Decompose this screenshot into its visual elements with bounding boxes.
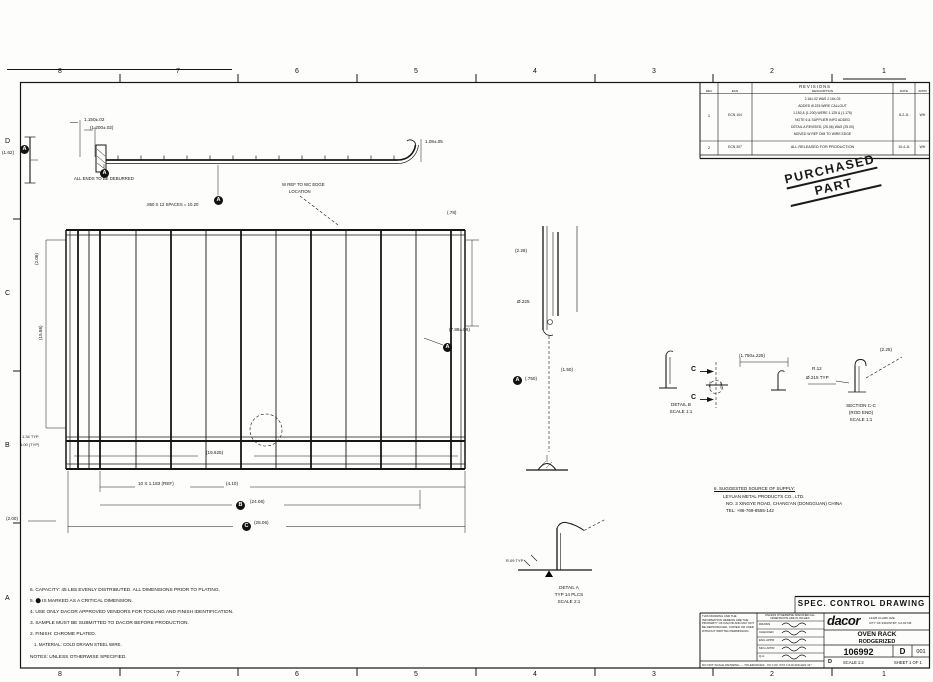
side-profile-view [25, 120, 422, 225]
section-caption: SCALE 1:1 [840, 417, 882, 422]
flag-note-balloon: A [513, 376, 522, 385]
zone-number-top: 5 [406, 68, 426, 75]
dim-label: (19.625) [206, 450, 223, 455]
dim-label: (.750) [525, 376, 537, 381]
revision-desc-line: 1.150 & (1.200) WERE 1.125 & (1.175) [752, 111, 893, 115]
dim-label: (.78) [447, 210, 456, 215]
dim-label: R.12 [812, 366, 822, 371]
revision-rev: 2 [700, 145, 718, 150]
general-note: 1. MATERIAL: COLD DRAWN STEEL WIRE. [34, 642, 122, 647]
zone-number-bottom: 8 [50, 671, 70, 678]
general-note: 4. USE ONLY DACOR APPROVED VENDORS FOR T… [30, 610, 233, 615]
zone-number-bottom: 6 [287, 671, 307, 678]
supplier-note-line: NO. 3 XINGYE ROAD, CHANG'AN (DONGGUAN) C… [726, 501, 842, 506]
dim-label: Ø.225 [517, 299, 530, 304]
general-note: 3. SAMPLE MUST BE SUBMITTED TO DACOR BEF… [30, 621, 189, 626]
zone-letter-left: A [5, 595, 10, 602]
dim-label: 1.34 TYP [22, 434, 39, 439]
zone-number-top: 1 [874, 68, 894, 75]
signature-row-label: DRAWN [759, 622, 770, 626]
general-note: 2. FINISH: CHROME PLATED. [30, 632, 96, 637]
detail-caption: SCALE 1:1 [664, 409, 698, 414]
revision-appr: WH [915, 145, 930, 149]
dim-label: (1.62) [2, 150, 14, 155]
zone-number-top: 4 [525, 68, 545, 75]
revision-number: 001 [912, 649, 930, 655]
desc-col-header: DESCRIPTION [752, 89, 893, 93]
revision-rev: 1 [700, 113, 718, 118]
sheet-size: D [893, 647, 912, 656]
zone-number-top: 3 [644, 68, 664, 75]
revision-appr: WH [915, 113, 930, 117]
supplier-note-line: TEL: +86-769-8555-142 [726, 508, 774, 513]
zone-number-bottom: 1 [874, 671, 894, 678]
detail-caption: DETAIL A [546, 585, 592, 590]
revision-desc-line: NOTE 6 & SUPPLIER INFO ADDED [752, 118, 893, 122]
revision-date: 8-2-11 [893, 113, 915, 117]
zone-number-bottom: 5 [406, 671, 426, 678]
general-note: 5. ⬤ IS MARKED AS A CRITICAL DIMENSION. [30, 599, 133, 604]
zone-number-bottom: 2 [762, 671, 782, 678]
flag-note-balloon: A [20, 145, 29, 154]
proprietary-notice: This drawing and the information hereon … [702, 615, 756, 633]
dim-label: (1.200±.02) [90, 125, 113, 130]
revision-desc-line: MOVED W REF DIM TO WIRE EDGE [752, 132, 893, 136]
section-cc-view [659, 351, 788, 408]
signature-row-label: ENG APPR [759, 638, 774, 642]
flag-note-balloon: B [236, 501, 245, 510]
dim-label: (2.25) [880, 347, 892, 352]
zone-number-bottom: 4 [525, 671, 545, 678]
zone-letter-left: D [5, 138, 10, 145]
signature-row-label: Q.A. [759, 654, 765, 658]
dim-label: 10 X 1.183 (REF) [138, 481, 174, 486]
signature-row-label: MFG APPR [759, 646, 775, 650]
rev-col-header: REV [700, 89, 718, 93]
sheet-count-label: SHEET 1 OF 1 [894, 660, 922, 665]
zone-letter-left: C [5, 290, 10, 297]
section-arrow-label: C [691, 366, 696, 373]
supplier-note-line: LEYUAN METAL PRODUCTS CO., LTD. [723, 494, 804, 499]
ref-note-text: W REF TO WC EDGE [282, 182, 325, 187]
drawing-number: 106992 [824, 647, 893, 657]
dim-label: (1.750±.225) [739, 353, 765, 358]
ecn-col-header: ECN [718, 89, 752, 93]
do-not-scale-note: DO NOT SCALE DRAWING — TOLERANCES: .XX ±… [702, 663, 812, 667]
dim-label: (15.86) [38, 325, 43, 340]
drawing-sheet: 8 7 6 5 4 3 2 1 8 7 6 5 4 3 2 1 D C B A … [0, 0, 933, 682]
dim-label: (1.50) [561, 367, 573, 372]
dim-label: 4.00 (TYP) [20, 442, 39, 447]
tolerance-note: Unless otherwise specified all dimension… [758, 614, 822, 621]
supplier-note-line: 6. SUGGESTED SOURCE OF SUPPLY: [714, 486, 795, 491]
dim-label: (24.06) [250, 499, 265, 504]
dim-label: (25.06) [254, 520, 269, 525]
dim-label: (2.28) [515, 248, 527, 253]
general-note: 6. CAPACITY: 45 LBS EVENLY DISTRIBUTED. … [30, 588, 220, 593]
zone-number-bottom: 7 [168, 671, 188, 678]
dim-label: 1.150±.02 [84, 117, 104, 122]
zone-letter-left: B [5, 442, 10, 449]
drawing-title-line2: RODGERIZED [824, 639, 930, 645]
section-caption: (ROD END) [840, 410, 882, 415]
cross-section-view [526, 226, 577, 470]
detail-caption: TYP 14 PLCS [546, 592, 592, 597]
flag-note-balloon: A [100, 169, 109, 178]
main-rack-view [28, 230, 479, 533]
linework-canvas [0, 0, 933, 682]
revision-date: 10-4-11 [893, 145, 915, 149]
detail-caption: DETAIL B [664, 402, 698, 407]
spacing-dim-label: .850 X 12 SPACES = 10.20 [146, 202, 198, 207]
drawing-title-line1: OVEN RACK [824, 631, 930, 638]
sheet-size-small: D [828, 659, 832, 665]
dim-label: (2.06) [34, 253, 39, 265]
zone-number-top: 7 [168, 68, 188, 75]
zone-number-bottom: 3 [644, 671, 664, 678]
date-col-header: DATE [893, 89, 915, 93]
flag-note-balloon: A [214, 196, 223, 205]
section-caption: SECTION C-C [840, 403, 882, 408]
scale-label: SCALE 1:2 [843, 660, 864, 665]
revision-desc-line: 2.16±.02 WAS 2.16±.03 [752, 97, 893, 101]
dim-label: 1.08±.05 [425, 139, 443, 144]
flag-note-balloon: A [443, 343, 452, 352]
section-arrow-label: C [691, 394, 696, 401]
dim-label: (2.00) [6, 516, 18, 521]
company-address: 14425 CLARK AVE. [869, 616, 895, 620]
flag-note-balloon: C [242, 522, 251, 531]
revision-desc-line: ADDED Ø.225 WIRE CALLOUT [752, 104, 893, 108]
spec-control-drawing-title: SPEC. CONTROL DRAWING [793, 599, 930, 608]
zone-number-top: 6 [287, 68, 307, 75]
dim-label: Ø.215 TYP [806, 375, 829, 380]
detail-a-view [518, 519, 606, 577]
revision-ecn: ECN 104 [718, 113, 752, 117]
dim-label: (7.88±.06) [449, 327, 470, 332]
revision-ecn: ECN 307 [718, 145, 752, 149]
ref-note-text: LOCATION [289, 189, 311, 194]
notes-header: NOTES: UNLESS OTHERWISE SPECIFIED. [30, 655, 127, 660]
signature-row-label: CHECKED [759, 630, 774, 634]
detail-caption: SCALE 2:1 [546, 599, 592, 604]
dim-label: (4.10) [226, 481, 238, 486]
dacor-logo: dacor [827, 613, 860, 628]
appr-col-header: APPR [915, 89, 930, 93]
dim-label: R.09 TYP [506, 558, 523, 563]
signature-squiggles [782, 623, 806, 659]
company-address: CITY OF INDUSTRY, CA 91745 [869, 621, 911, 625]
revision-desc: ALL RELEASED FOR PRODUCTION [752, 145, 893, 149]
revision-desc-line: DETAIL A REVISED; (25.06) WAS (25.00) [752, 125, 893, 129]
zone-number-top: 8 [50, 68, 70, 75]
zone-number-top: 2 [762, 68, 782, 75]
